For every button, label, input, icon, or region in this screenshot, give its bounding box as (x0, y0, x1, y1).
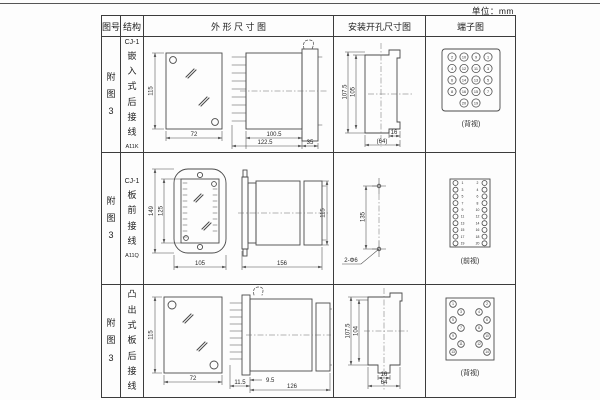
terminal-number: 1 (452, 302, 454, 306)
model-prefix: CJ-1 (125, 178, 140, 185)
structure-label: 凸出式板后接线 (126, 287, 138, 394)
dim-outer-v: 107.5 (346, 323, 352, 339)
dim-height: 115 (149, 86, 155, 96)
row3-terminal-cell: 1357911132468101214 (背视) (426, 285, 515, 397)
figure-number: 附图3 (106, 193, 117, 244)
terminal-circle (482, 194, 487, 199)
terminal-number: 2 (451, 55, 453, 59)
terminal-number: 17 (461, 235, 465, 239)
terminal-number: 4 (478, 310, 480, 314)
col-header-structure: 结构 (121, 16, 144, 37)
terminal-circle (482, 241, 487, 246)
terminal-number: 13 (451, 350, 455, 354)
row1-figure-number-cell: 附图3 (102, 37, 121, 153)
terminal-circle (482, 181, 487, 186)
row2-mounting-cell: 135 2-Φ6 (334, 153, 426, 285)
terminal-number: 5 (452, 318, 454, 322)
terminal-number: 14 (485, 350, 489, 354)
row3-structure-cell: CJ-1 凸出式板后接线 A11H (121, 285, 144, 397)
side-view (230, 287, 332, 375)
dim-inner-height: 125 (159, 205, 165, 216)
dim-depth: 156 (277, 261, 288, 267)
terminal-circle (453, 241, 458, 246)
row1-structure-cell: CJ-1 嵌入式后接线 A11K (121, 37, 144, 153)
terminal-number: 10 (462, 55, 466, 59)
terminal-number: 3 (487, 67, 489, 71)
terminal-number: 13 (461, 221, 465, 225)
terminal-number: 18 (476, 235, 480, 239)
terminal-number: 11 (459, 342, 463, 346)
terminal-circle (453, 227, 458, 232)
terminal-number: 11 (461, 215, 465, 219)
terminal-number: 3 (462, 188, 464, 192)
terminal-circle (453, 214, 458, 219)
terminal-number: 8 (478, 326, 480, 330)
terminal-number: 2 (486, 302, 488, 306)
cutout-outline (365, 50, 400, 133)
terminal-number: 9 (462, 208, 464, 212)
dim-flange: 35 (307, 140, 314, 146)
terminal-number: 10 (476, 208, 480, 212)
terminal-circle (482, 201, 487, 206)
outline-drawing-a11k: 115 72 100.5 122.5 35 (144, 37, 332, 152)
terminal-circle (482, 214, 487, 219)
row3-figure-number-cell: 附图3 (102, 285, 121, 397)
dim-inner-v: 105 (351, 86, 357, 97)
col-header-outline: 外 形 尺 寸 图 (144, 16, 334, 37)
terminal-number: 19 (461, 242, 465, 246)
view-caption: (背视) (461, 368, 480, 377)
row2-figure-number-cell: 附图3 (102, 153, 121, 285)
front-dimension-lines (152, 169, 226, 270)
terminal-number: 3 (460, 310, 462, 314)
dim-side-height: 115 (321, 208, 327, 218)
terminal-diagram-a11k: 210914121136141358161572019 (背视) (426, 37, 514, 152)
col-header-terminal: 端子图 (426, 16, 515, 37)
terminal-diagram-a11h: 1357911132468101214 (背视) (426, 285, 514, 396)
page-top-rule (0, 3, 600, 4)
outline-drawing-a11h: 115 72 11.5 9.5 126 (144, 285, 332, 396)
dim-width: 72 (191, 132, 198, 138)
terminal-number: 9 (475, 55, 477, 59)
mounting-dimension-lines (342, 186, 379, 264)
front-view (174, 169, 226, 253)
terminal-circle (453, 207, 458, 212)
terminal-number: 11 (474, 67, 478, 71)
terminal-circle (453, 234, 458, 239)
terminal-circle (453, 187, 458, 192)
terminal-circles: 1357911132468101214 (450, 301, 491, 356)
terminal-number: 20 (476, 242, 480, 246)
terminal-circle (453, 194, 458, 199)
terminal-number: 6 (477, 195, 479, 199)
mounting-dimension-lines (348, 297, 400, 389)
terminal-circles: 1357911131517192468101214161820 (453, 181, 487, 246)
row1-outline-cell: 115 72 100.5 122.5 35 (144, 37, 334, 153)
row2-outline-cell: 149 125 105 115 156 (144, 153, 334, 285)
terminal-number: 5 (462, 195, 464, 199)
dim-hole-size: 2-Φ6 (344, 258, 358, 264)
terminal-number: 7 (460, 326, 462, 330)
terminal-number: 14 (476, 221, 480, 225)
dim-pin: 9.5 (266, 378, 275, 384)
terminal-circle (482, 187, 487, 192)
terminal-number: 2 (477, 181, 479, 185)
dim-width: 105 (195, 261, 206, 267)
cutout-outline (368, 293, 402, 373)
terminal-number: 5 (487, 78, 489, 82)
structure-label: 板前接线 (126, 188, 138, 249)
terminal-circle (453, 221, 458, 226)
terminal-number: 16 (476, 228, 480, 232)
terminal-circle (453, 181, 458, 186)
terminal-number: 13 (474, 78, 478, 82)
front-view (166, 53, 222, 129)
mounting-drawing-a11h: 107.5 104 16 64 (334, 285, 425, 396)
dim-outer-height: 149 (149, 205, 155, 216)
terminal-number: 9 (452, 334, 454, 338)
terminal-outline (450, 179, 490, 247)
dim-slot: 16 (391, 130, 398, 136)
mounting-drawing-a11k: 107.5 105 16 (64) (334, 37, 425, 152)
col-header-mounting: 安装开孔尺寸图 (334, 16, 426, 37)
terminal-circles: 210914121136141358161572019 (448, 53, 492, 107)
terminal-number: 15 (461, 228, 465, 232)
row1-mounting-cell: 107.5 105 16 (64) (334, 37, 426, 153)
structure-label: 嵌入式后接线 (126, 49, 138, 141)
front-dimension-lines (152, 297, 222, 385)
outline-drawing-a11q: 149 125 105 115 156 (144, 153, 332, 284)
view-caption: (背视) (462, 119, 481, 128)
row1-terminal-cell: 210914121136141358161572019 (背视) (426, 37, 515, 153)
terminal-number: 14 (462, 78, 466, 82)
terminal-number: 10 (485, 334, 489, 338)
terminal-number: 7 (462, 201, 464, 205)
figure-number: 附图3 (106, 315, 117, 366)
front-view (164, 297, 222, 373)
view-caption: (前视) (461, 256, 480, 265)
side-dimension-lines (242, 181, 329, 270)
row2-terminal-cell: 1357911131517192468101214161820 (前视) (426, 153, 515, 285)
dimension-table: 图号 结构 外 形 尺 寸 图 安装开孔尺寸图 端子图 附图3 CJ-1 嵌入式… (101, 15, 516, 398)
terminal-number: 4 (477, 188, 479, 192)
dim-width: (64) (377, 139, 388, 145)
terminal-number: 8 (477, 201, 479, 205)
side-view (232, 40, 322, 141)
dim-inner-v: 104 (354, 325, 360, 336)
model-prefix: CJ-1 (125, 39, 140, 46)
model-code: A11K (125, 144, 138, 150)
terminal-circle (482, 234, 487, 239)
front-dimension-lines (152, 53, 222, 141)
dim-depth1: 100.5 (266, 132, 282, 138)
terminal-number: 4 (451, 67, 453, 71)
dim-width: 64 (381, 380, 388, 386)
terminal-number: 1 (487, 55, 489, 59)
row2-structure-cell: CJ-1 板前接线 A11Q (121, 153, 144, 285)
terminal-number: 20 (462, 101, 466, 105)
terminal-number: 12 (462, 67, 466, 71)
dim-width: 72 (190, 376, 197, 382)
terminal-diagram-a11q: 1357911131517192468101214161820 (前视) (426, 153, 514, 284)
terminal-circle (482, 221, 487, 226)
dim-depth2: 122.5 (257, 140, 273, 146)
figure-number: 附图3 (106, 69, 117, 120)
dim-hole-spacing: 135 (361, 211, 367, 222)
row3-mounting-cell: 107.5 104 16 64 (334, 285, 426, 397)
dim-height: 115 (149, 330, 155, 340)
terminal-circle (482, 207, 487, 212)
terminal-circle (482, 227, 487, 232)
terminal-number: 8 (451, 90, 453, 94)
terminal-number: 7 (487, 90, 489, 94)
terminal-number: 19 (474, 101, 478, 105)
row3-outline-cell: 115 72 11.5 9.5 126 (144, 285, 334, 397)
dim-slot: 16 (381, 372, 388, 378)
col-header-fig: 图号 (102, 16, 121, 37)
terminal-number: 6 (486, 318, 488, 322)
terminal-number: 1 (462, 181, 464, 185)
terminal-number: 12 (477, 342, 481, 346)
side-dimension-lines (230, 365, 330, 393)
terminal-number: 12 (476, 215, 480, 219)
terminal-number: 16 (462, 90, 466, 94)
terminal-circle (453, 201, 458, 206)
model-code: A11Q (125, 253, 139, 259)
terminal-number: 6 (451, 78, 453, 82)
mounting-drawing-a11q: 135 2-Φ6 (334, 153, 425, 284)
terminal-number: 15 (474, 90, 478, 94)
dim-depth: 126 (287, 384, 298, 390)
dim-outer-v: 107.5 (343, 84, 349, 100)
dim-lead: 11.5 (234, 380, 246, 386)
